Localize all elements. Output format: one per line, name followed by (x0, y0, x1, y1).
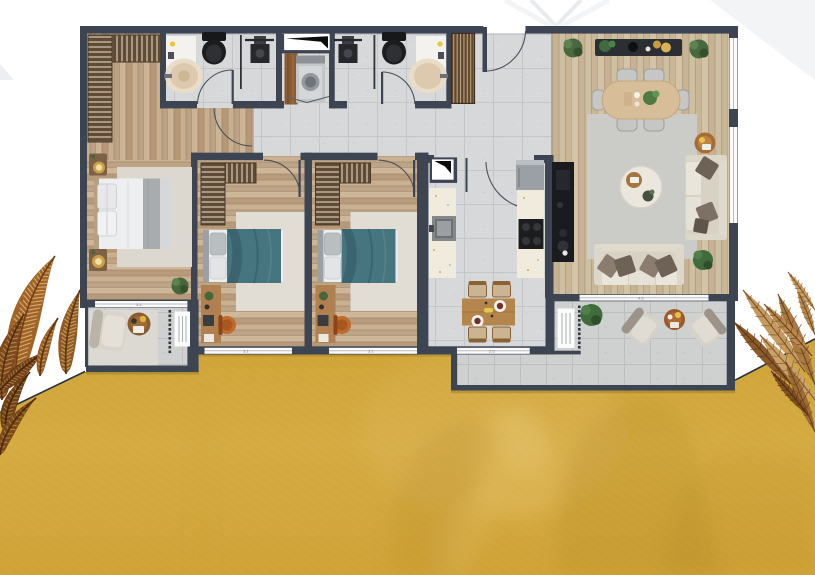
svg-text:4.6: 4.6 (638, 296, 644, 301)
svg-text:3.4: 3.4 (136, 302, 142, 307)
svg-text:3.1: 3.1 (368, 349, 374, 354)
svg-text:3.1: 3.1 (243, 349, 249, 354)
svg-text:2.6: 2.6 (489, 349, 495, 354)
